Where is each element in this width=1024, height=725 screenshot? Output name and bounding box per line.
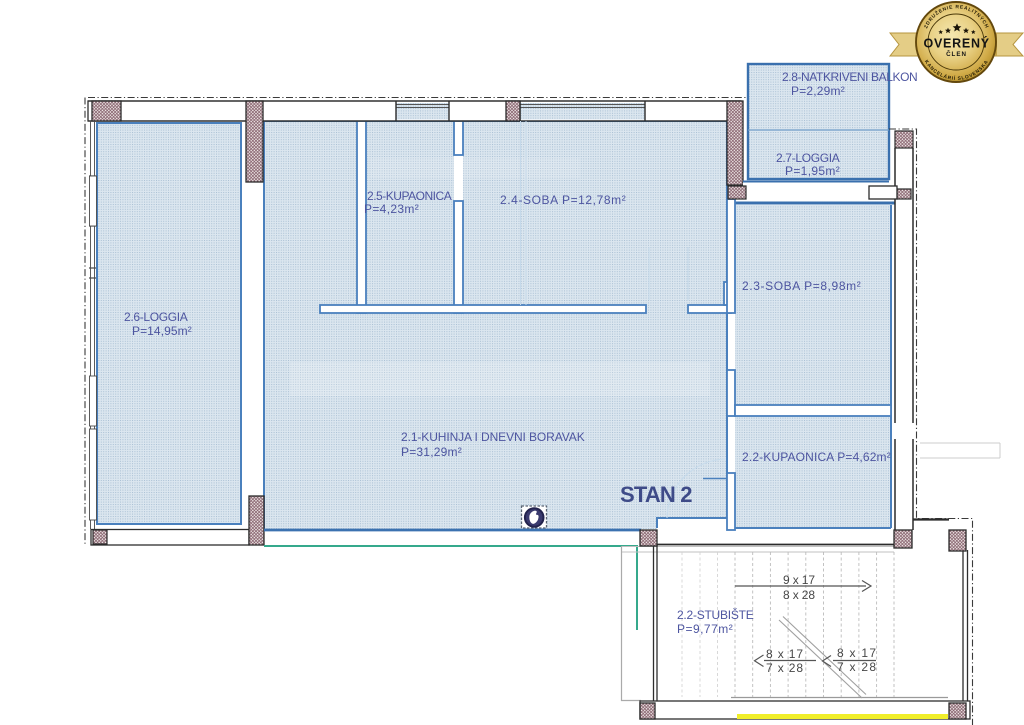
svg-text:STAN 2: STAN 2 bbox=[620, 482, 694, 507]
svg-text:8 x 28: 8 x 28 bbox=[783, 588, 815, 602]
svg-text:8 x 17: 8 x 17 bbox=[837, 646, 876, 660]
svg-text:8 x 17: 8 x 17 bbox=[766, 647, 803, 661]
svg-text:7 x 28: 7 x 28 bbox=[766, 661, 803, 675]
svg-text:P=9,77m²: P=9,77m² bbox=[677, 622, 733, 636]
svg-text:2.8-NATKRIVENI BALKON: 2.8-NATKRIVENI BALKON bbox=[782, 70, 918, 84]
svg-text:2.1-KUHINJA I DNEVNI BORAVAK: 2.1-KUHINJA I DNEVNI BORAVAK bbox=[401, 430, 585, 444]
svg-text:2.7-LOGGIA: 2.7-LOGGIA bbox=[776, 151, 840, 165]
svg-text:2.6-LOGGIA: 2.6-LOGGIA bbox=[124, 310, 188, 324]
svg-text:P=31,29m²: P=31,29m² bbox=[401, 445, 462, 459]
svg-text:ČLEN: ČLEN bbox=[946, 51, 967, 58]
svg-text:P=1,95m²: P=1,95m² bbox=[785, 164, 840, 178]
svg-text:2.5-KUPAONICA: 2.5-KUPAONICA bbox=[367, 189, 452, 203]
svg-text:2.2-KUPAONICA P=4,62m²: 2.2-KUPAONICA P=4,62m² bbox=[742, 450, 891, 464]
svg-text:2.4-SOBA P=12,78m²: 2.4-SOBA P=12,78m² bbox=[500, 193, 626, 207]
svg-text:OVERENÝ: OVERENÝ bbox=[924, 35, 990, 50]
svg-text:P=2,29m²: P=2,29m² bbox=[791, 84, 845, 98]
svg-text:2.2-STUBIŠTE: 2.2-STUBIŠTE bbox=[677, 607, 754, 622]
svg-text:9 x 17: 9 x 17 bbox=[783, 573, 815, 587]
svg-text:2.3-SOBA P=8,98m²: 2.3-SOBA P=8,98m² bbox=[742, 279, 861, 293]
svg-text:P=4,23m²: P=4,23m² bbox=[364, 202, 419, 216]
svg-text:P=14,95m²: P=14,95m² bbox=[132, 324, 192, 338]
svg-text:7 x 28: 7 x 28 bbox=[837, 660, 876, 674]
